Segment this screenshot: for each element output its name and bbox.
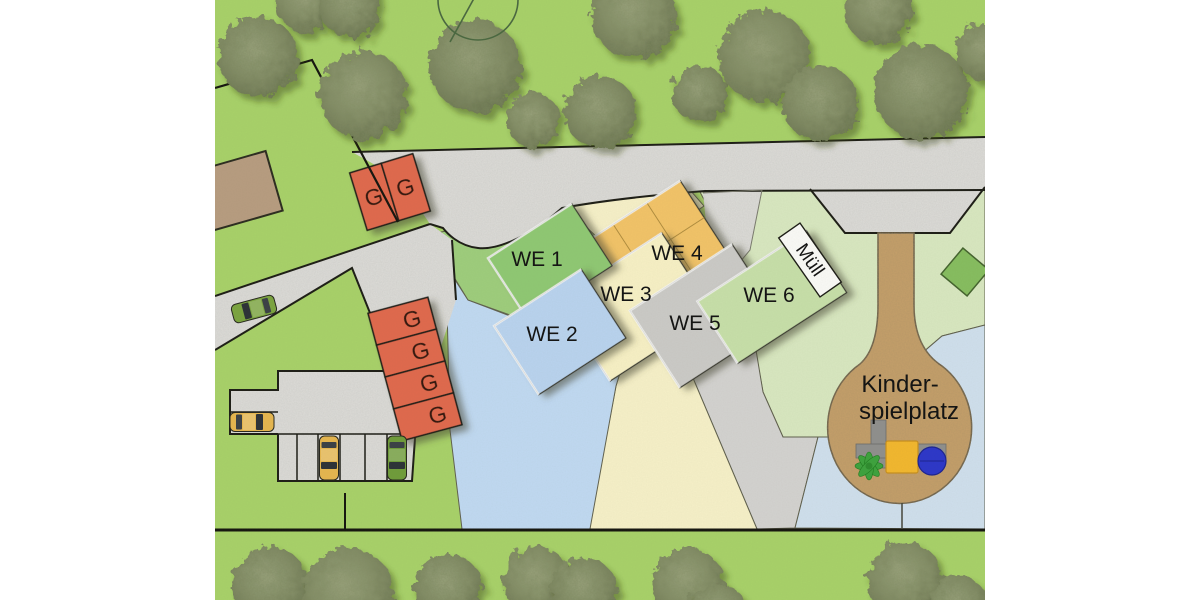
tree-icon [956,24,1012,80]
playhouse-icon [886,441,918,473]
tree-icon [874,45,968,139]
car-stall-green [388,436,407,480]
tree-icon [319,51,407,139]
tree-icon [672,66,728,122]
site-plan-page: G G G G G G [0,0,1200,600]
tree-icon [429,20,521,112]
tree-icon [218,17,298,97]
label-we4: WE 4 [651,242,703,265]
label-we2: WE 2 [526,323,577,346]
label-playground-line1: Kinder- [861,371,938,398]
car-parking-bay [230,413,274,432]
label-we1: WE 1 [511,248,562,271]
tree-icon [564,76,636,148]
label-we6: WE 6 [743,284,794,307]
site-plan-map: G G G G G G [0,0,1200,600]
car-stall-yellow [320,436,339,480]
shrub-icon [855,452,883,480]
label-playground-line2: spielplatz [859,398,959,425]
label-we3: WE 3 [600,283,651,306]
tree-icon [506,93,560,147]
tree-icon [782,65,858,141]
label-we5: WE 5 [669,312,720,335]
